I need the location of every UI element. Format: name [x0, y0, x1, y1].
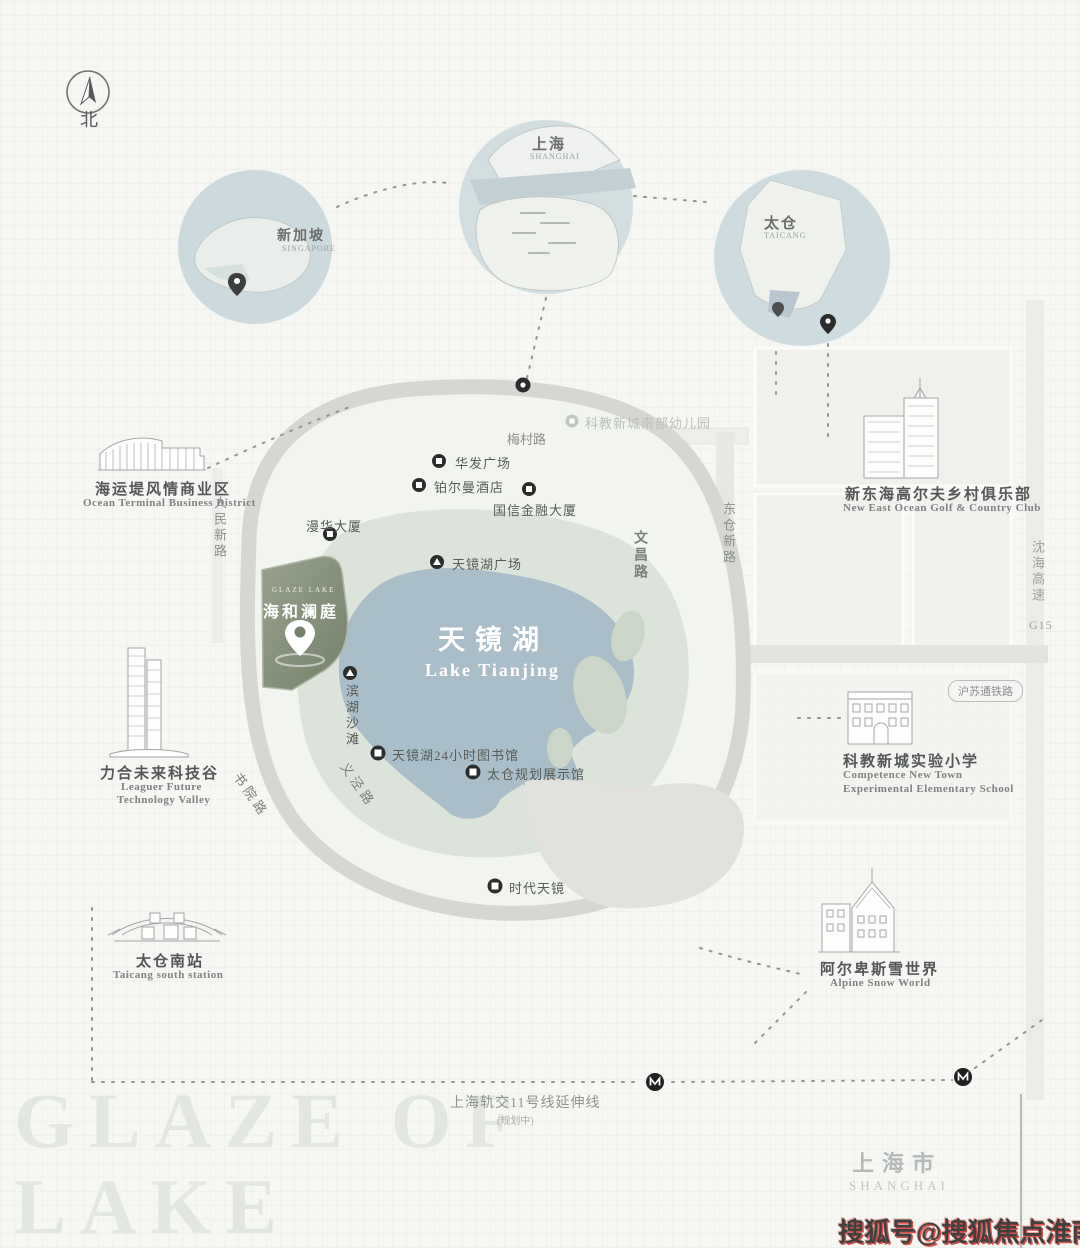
compass-north-label: 北 [80, 106, 98, 132]
poi-lakeside-beach: 滨湖沙滩 [342, 684, 361, 748]
metro-icon [646, 1073, 664, 1091]
inset-taicang [714, 170, 890, 346]
landmark-taicang-station-cn: 太仓南站 [136, 950, 204, 971]
inset-taicang-label: 太仓 [764, 212, 798, 233]
inset-singapore-sublabel: SINGAPORE [282, 244, 336, 253]
landmark-snow-world-cn: 阿尔卑斯雪世界 [820, 958, 939, 979]
landmark-golf-club-en: New East Ocean Golf & Country Club [843, 502, 1041, 514]
project-name: 海和澜庭 [263, 598, 339, 622]
landmark-school-en2: Experimental Elementary School [843, 783, 1014, 795]
landmark-leaguer-en1: Leaguer Future [121, 781, 202, 793]
rail-badge-husutong: 沪苏通铁路 [948, 680, 1023, 702]
poi-south-kindergarten: 科教新城南部幼儿园 [585, 413, 711, 432]
landmark-snow-world-en: Alpine Snow World [830, 977, 931, 989]
poi-pullman-hotel: 铂尔曼酒店 [434, 477, 504, 496]
poi-24h-library: 天镜湖24小时图书馆 [392, 745, 519, 764]
landmark-taicang-station-en: Taicang south station [113, 969, 223, 981]
road-label-wenchang: 文昌路 [629, 530, 649, 581]
sohu-watermark: 搜狐号@搜狐焦点淮南站 [838, 1212, 1080, 1249]
metro11-note: (规划中) [497, 1112, 534, 1127]
landmark-leaguer-cn: 力合未来科技谷 [100, 762, 219, 783]
poi-times-tianjing: 时代天镜 [509, 878, 565, 897]
lake-name-en: Lake Tianjing [425, 660, 560, 681]
school-icon [848, 692, 912, 744]
mall-building-icon [98, 438, 206, 470]
snow-world-icon [818, 868, 900, 952]
project-brand: GLAZE LAKE [272, 586, 335, 594]
road-label-g15-code: G15 [1029, 618, 1053, 633]
metro11-label: 上海轨交11号线延伸线 [450, 1092, 600, 1112]
landmark-school-cn: 科教新城实验小学 [843, 750, 979, 771]
landmark-leaguer-en2: Technology Valley [117, 794, 210, 806]
road-label-meicun: 梅村路 [505, 429, 548, 448]
poi-planning-hall: 太仓规划展示馆 [487, 764, 585, 783]
region-cn: 上海市 [852, 1146, 942, 1178]
inset-shanghai-label: 上海 [532, 133, 566, 154]
landmark-ocean-terminal-cn: 海运堤风情商业区 [95, 478, 231, 499]
poi-manhua-tower: 漫华大厦 [306, 516, 362, 535]
landmark-golf-club-cn: 新东海高尔夫乡村俱乐部 [845, 483, 1032, 504]
tower-icon [110, 648, 188, 757]
region-en: SHANGHAI [849, 1178, 949, 1194]
station-icon [108, 913, 226, 941]
poi-huafa-plaza: 华发广场 [455, 453, 511, 472]
road-label-dongcangxin: 东仓新路 [719, 502, 738, 566]
location-map-poster: GLAZE OF LAKE [0, 0, 1080, 1248]
lake-name-cn: 天镜湖 [438, 618, 549, 657]
inset-singapore-label: 新加坡 [277, 225, 325, 245]
road-label-g15-cn: 沈海高速 [1028, 540, 1047, 604]
inset-taicang-sublabel: TAICANG [764, 231, 806, 240]
metro-station-marker [516, 378, 531, 393]
landmark-school-en1: Competence New Town [843, 769, 963, 781]
metro-icon [954, 1068, 972, 1086]
poi-tianjinghu-plaza: 天镜湖广场 [452, 554, 522, 573]
inset-shanghai-sublabel: SHANGHAI [530, 152, 580, 161]
kindergarten-marker [566, 415, 579, 428]
landmark-ocean-terminal-en: Ocean Terminal Business District [83, 497, 256, 509]
poi-guoxin-finance-tower: 国信金融大厦 [493, 500, 577, 519]
lake-island-small [547, 728, 573, 768]
road-g15 [1026, 300, 1044, 1100]
